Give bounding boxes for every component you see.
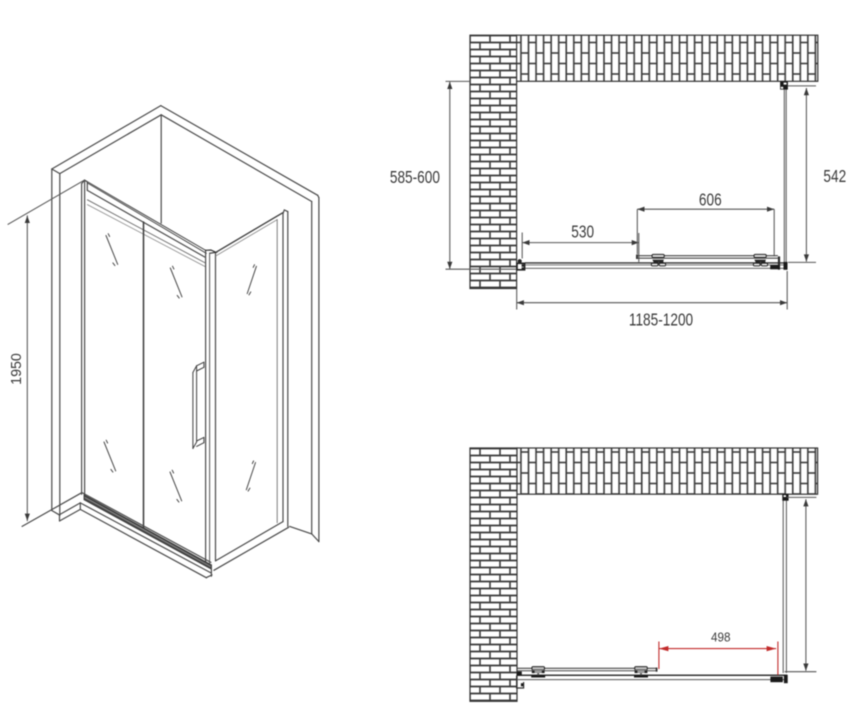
svg-text:1950: 1950 <box>8 353 24 385</box>
svg-text:498: 498 <box>711 630 731 645</box>
svg-text:585-600: 585-600 <box>390 168 440 187</box>
svg-text:606: 606 <box>699 191 722 210</box>
svg-text:530: 530 <box>571 223 594 242</box>
svg-text:1185-1200: 1185-1200 <box>629 311 693 330</box>
svg-text:542: 542 <box>823 167 846 186</box>
